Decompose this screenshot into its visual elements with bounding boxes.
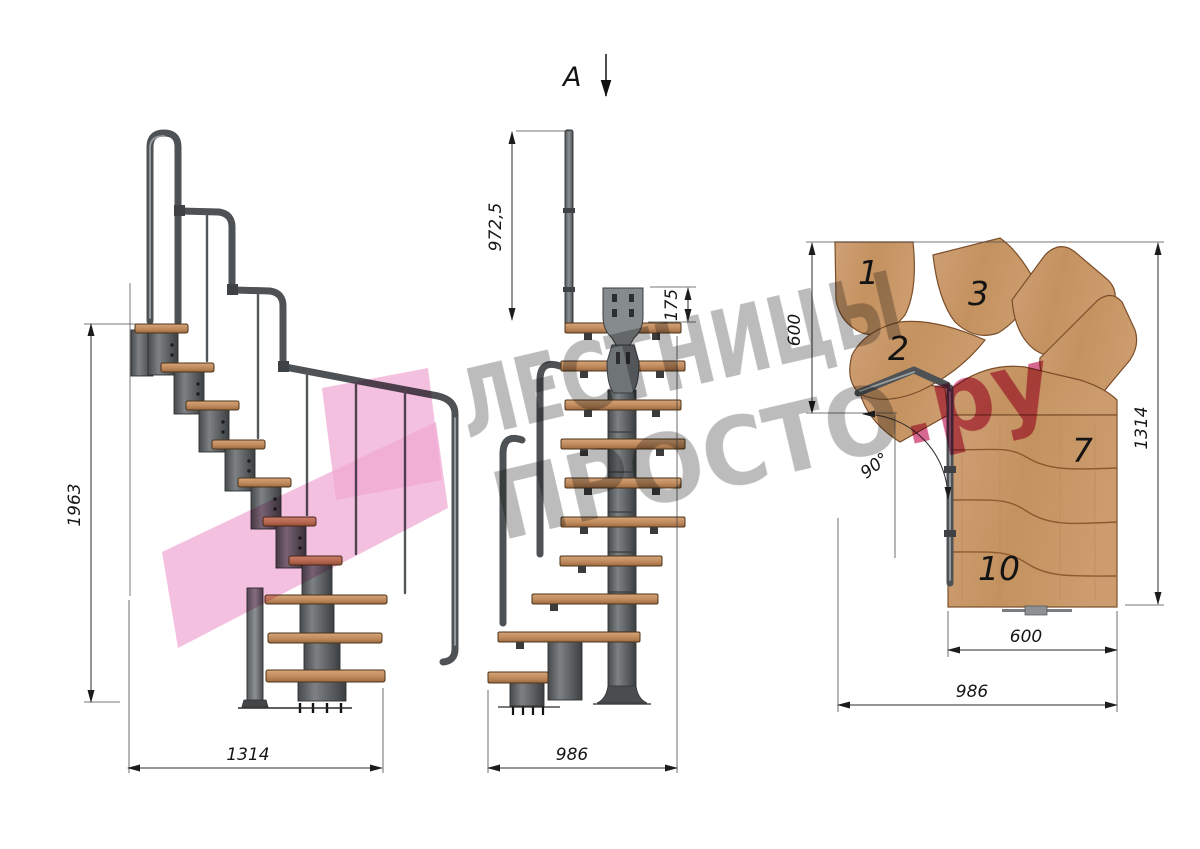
dim-side-length: 1314	[226, 745, 269, 765]
staircase-drawing: 1963 1314 A	[0, 0, 1200, 849]
dim-plan-height: 1314	[1132, 406, 1152, 449]
rail-clamp	[227, 284, 238, 295]
dim-front-width: 986	[556, 745, 589, 765]
front-module	[510, 682, 544, 706]
floor-bracket	[1025, 606, 1047, 615]
step-label-3: 3	[968, 274, 989, 313]
dim-plan-flight-width: 600	[1010, 627, 1042, 647]
rail-clamp	[278, 361, 289, 372]
rail-clamp	[174, 205, 185, 216]
front-module	[548, 642, 582, 700]
step-label-7: 7	[1072, 431, 1093, 470]
dim-plan-total-width: 986	[956, 682, 989, 702]
step-label-10: 10	[978, 549, 1020, 588]
section-label: A	[561, 62, 581, 93]
dim-rail-height: 972,5	[486, 203, 506, 252]
dim-side-height: 1963	[65, 483, 85, 526]
section-arrow: A	[561, 54, 606, 96]
balcony-rail	[565, 130, 573, 331]
